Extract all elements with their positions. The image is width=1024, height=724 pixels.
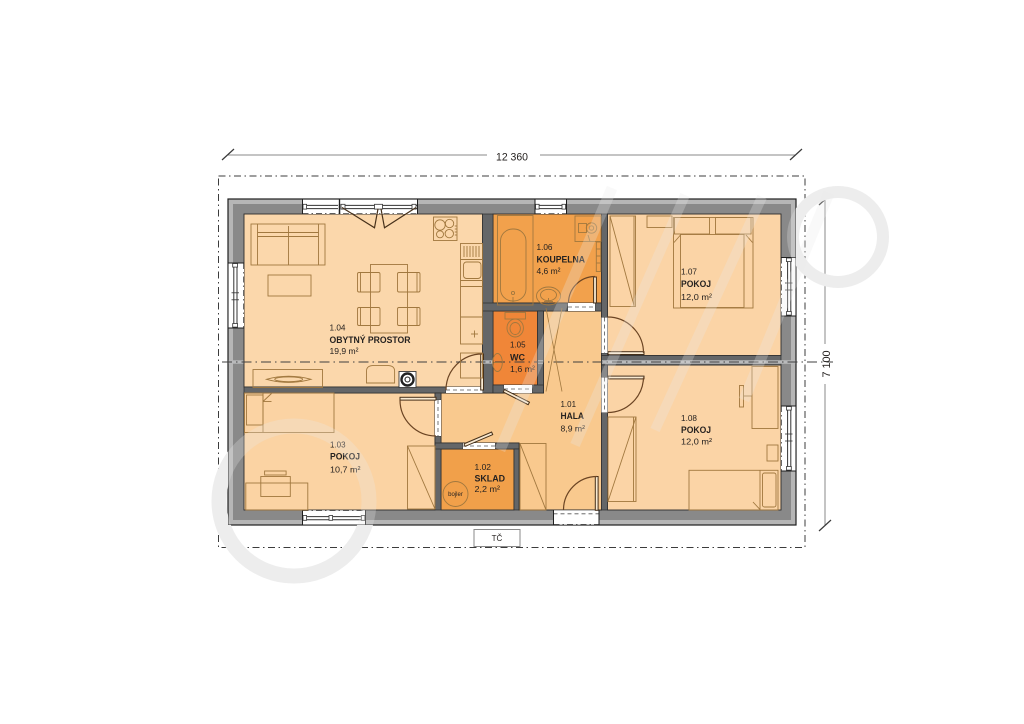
svg-text:OBYTNÝ PROSTOR: OBYTNÝ PROSTOR	[330, 334, 412, 345]
svg-text:19,9 m²: 19,9 m²	[330, 346, 359, 356]
svg-text:2,2 m²: 2,2 m²	[475, 484, 501, 494]
svg-text:1.06: 1.06	[537, 242, 553, 252]
svg-text:12,0 m²: 12,0 m²	[681, 292, 712, 302]
svg-text:TČ: TČ	[492, 534, 503, 543]
svg-text:WC: WC	[510, 353, 526, 363]
svg-text:12 360: 12 360	[496, 151, 528, 163]
svg-text:1.05: 1.05	[510, 340, 526, 350]
svg-text:1.02: 1.02	[475, 462, 492, 472]
svg-text:12,0 m²: 12,0 m²	[681, 437, 712, 447]
svg-text:1.07: 1.07	[681, 267, 697, 277]
svg-text:1.08: 1.08	[681, 413, 697, 423]
svg-text:bojler: bojler	[448, 492, 463, 498]
svg-text:SKLAD: SKLAD	[475, 474, 506, 484]
svg-text:7 100: 7 100	[821, 351, 833, 378]
svg-text:4,6 m²: 4,6 m²	[537, 266, 561, 276]
svg-text:POKOJ: POKOJ	[681, 425, 711, 435]
svg-text:1.04: 1.04	[330, 323, 346, 333]
svg-text:1.01: 1.01	[561, 399, 577, 409]
svg-text:POKOJ: POKOJ	[681, 279, 711, 289]
